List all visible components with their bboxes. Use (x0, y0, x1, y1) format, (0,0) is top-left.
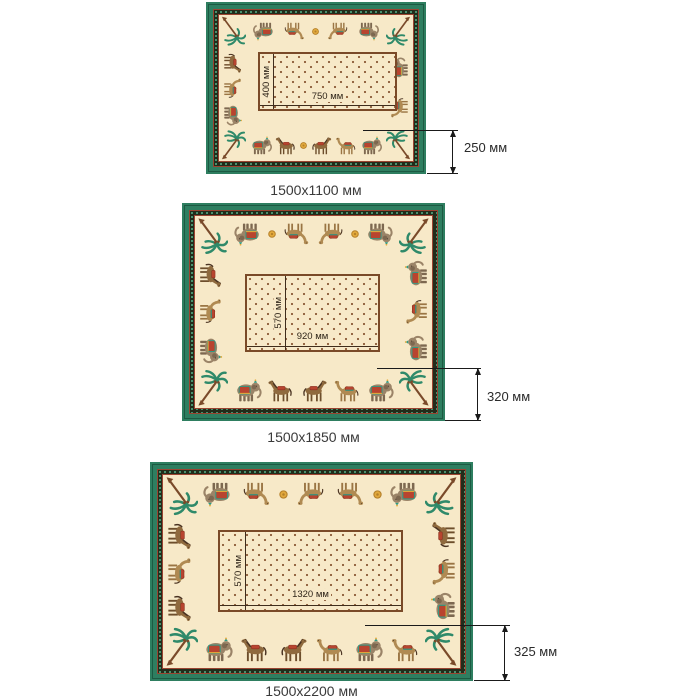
horse-icon (200, 260, 223, 290)
camel-icon (224, 76, 243, 100)
camel-icon (314, 637, 346, 662)
dimension-arrow (504, 625, 505, 681)
size-caption: 1500x1850 мм (182, 429, 445, 445)
camel-icon (282, 22, 306, 41)
tablecloth-preview-1500x1100: 400 мм 750 мм (206, 2, 426, 174)
dimension-arrow (452, 130, 453, 174)
horse-icon (168, 519, 193, 551)
camel-icon (281, 223, 311, 246)
width-dimension-line (220, 605, 401, 606)
size-caption: 1500x2200 мм (150, 683, 473, 699)
elephant-icon (356, 22, 380, 41)
plain-center-area: 570 мм 920 мм (245, 274, 380, 352)
border-motifs-left (220, 49, 246, 127)
elephant-icon (389, 482, 421, 507)
camel-icon (326, 22, 350, 41)
elephant-icon (365, 379, 395, 402)
palm-tree-icon (164, 627, 198, 667)
horse-icon (299, 379, 329, 402)
camel-icon (295, 482, 327, 507)
tablecloth-preview-1500x1850: 570 мм 920 мм (182, 203, 445, 421)
border-width-label: 325 мм (514, 644, 557, 659)
camel-icon (240, 482, 272, 507)
camel-icon (316, 223, 346, 246)
sun-icon (311, 27, 320, 36)
border-motifs-top (231, 217, 396, 251)
border-motifs-left (196, 256, 226, 368)
border-width-label: 250 мм (464, 140, 507, 155)
elephant-icon (202, 637, 234, 662)
sun-icon (299, 141, 308, 150)
horse-icon (266, 379, 296, 402)
elephant-icon (352, 637, 384, 662)
palm-tree-icon (196, 369, 228, 407)
elephant-icon (233, 379, 263, 402)
dimension-extension-line (365, 625, 510, 626)
camel-icon (168, 555, 193, 587)
elephant-icon (359, 136, 383, 155)
palm-tree-icon (386, 16, 412, 46)
camel-icon (389, 637, 421, 662)
elephant-icon (405, 260, 428, 290)
horse-icon (224, 50, 243, 74)
elephant-icon (249, 136, 273, 155)
elephant-icon (364, 223, 394, 246)
tablecloth-preview-1500x2200: 570 мм 1320 мм (150, 462, 473, 681)
palm-tree-icon (220, 16, 246, 46)
sun-icon (350, 229, 360, 239)
elephant-icon (405, 334, 428, 364)
elephant-icon (233, 223, 263, 246)
horse-icon (274, 136, 298, 155)
border-motifs-bottom (249, 130, 383, 160)
border-motifs-bottom (199, 631, 424, 667)
palm-tree-icon (386, 130, 412, 160)
border-motifs-right (427, 517, 459, 626)
elephant-icon (202, 482, 234, 507)
product-size-diagram: 400 мм 750 мм 570 мм 920 мм (0, 0, 700, 700)
border-motifs-top (249, 16, 383, 46)
palm-tree-icon (164, 476, 198, 516)
center-width-label: 1320 мм (220, 584, 401, 602)
palm-tree-icon (399, 217, 431, 255)
palm-tree-icon (220, 130, 246, 160)
size-caption: 1500x1100 мм (206, 182, 426, 198)
dimension-extension-line (363, 130, 458, 131)
dimension-extension-line (377, 368, 481, 369)
palm-tree-icon (196, 217, 228, 255)
dimension-arrow (477, 368, 478, 421)
width-dimension-line (247, 346, 378, 347)
elephant-icon (200, 334, 223, 364)
horse-icon (239, 637, 271, 662)
camel-icon (405, 297, 428, 327)
center-width-label: 750 мм (260, 86, 395, 104)
camel-icon (334, 136, 358, 155)
elephant-icon (252, 22, 276, 41)
horse-icon (277, 637, 309, 662)
sun-icon (267, 229, 277, 239)
palm-tree-icon (425, 627, 459, 667)
border-motifs-left (164, 517, 196, 626)
plain-center-area: 400 мм 750 мм (258, 52, 397, 111)
horse-icon (431, 519, 456, 551)
plain-center-area: 570 мм 1320 мм (218, 530, 403, 612)
border-motifs-right (401, 256, 431, 368)
border-width-label: 320 мм (487, 389, 530, 404)
horse-icon (309, 136, 333, 155)
border-motifs-bottom (231, 373, 396, 407)
elephant-icon (431, 592, 456, 624)
camel-icon (332, 379, 362, 402)
sun-icon (372, 489, 383, 500)
border-motifs-top (199, 476, 424, 512)
horse-icon (168, 592, 193, 624)
palm-tree-icon (425, 476, 459, 516)
width-dimension-line (260, 105, 395, 106)
camel-icon (431, 555, 456, 587)
camel-icon (334, 482, 366, 507)
camel-icon (200, 297, 223, 327)
sun-icon (278, 489, 289, 500)
center-width-label: 920 мм (247, 326, 378, 344)
palm-tree-icon (399, 369, 431, 407)
elephant-icon (224, 102, 243, 126)
